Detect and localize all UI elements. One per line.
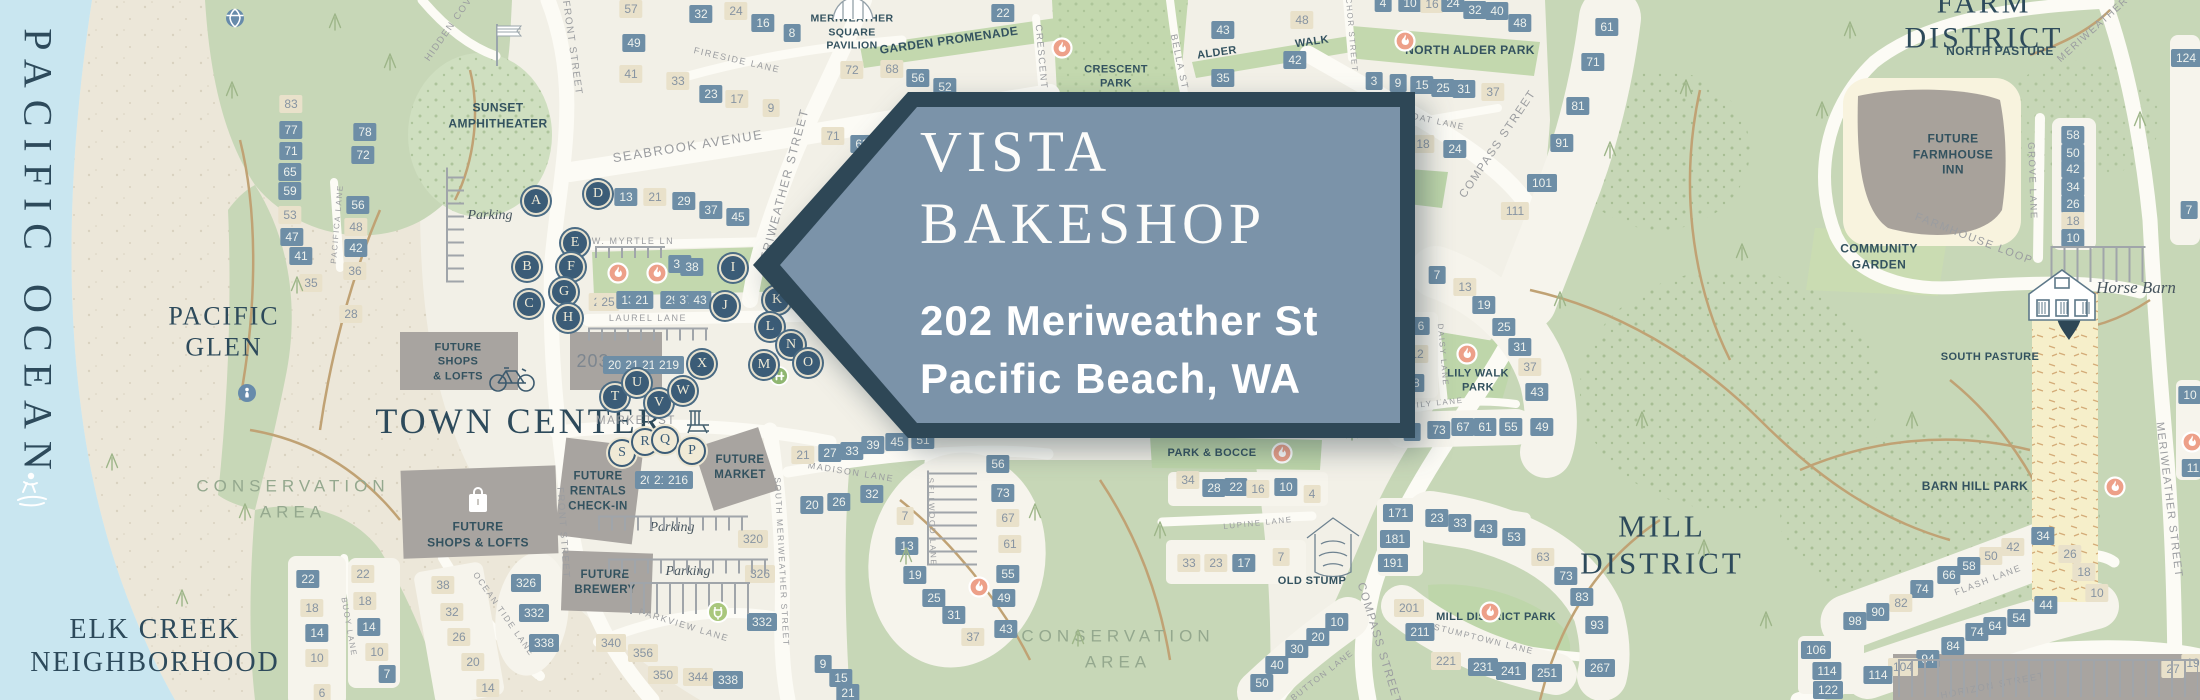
callout: [0, 0, 2200, 700]
community-map: PACIFIC OCEANPACIFIC GLENTOWN CENTERELK …: [0, 0, 2200, 700]
